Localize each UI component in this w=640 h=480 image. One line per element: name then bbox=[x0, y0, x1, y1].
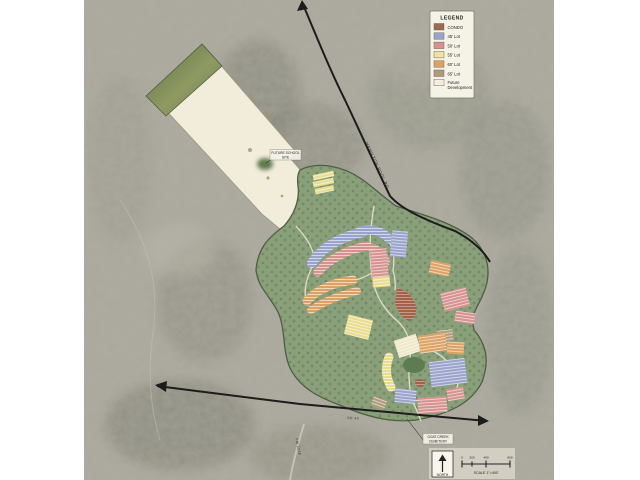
legend-label-65: 65' Lot bbox=[448, 71, 461, 76]
legend-title: LEGEND bbox=[440, 16, 463, 22]
legend-swatch-60 bbox=[434, 61, 444, 67]
scale-label: SCALE 1"=400' bbox=[474, 471, 499, 475]
lot-band-55 bbox=[373, 276, 391, 287]
lot-band-60 bbox=[447, 341, 465, 354]
scale-tick-200: 200 bbox=[469, 456, 474, 460]
legend-label-future-line2: Development bbox=[448, 85, 474, 90]
bottom-road-label: SH 45 bbox=[347, 416, 359, 421]
left-margin bbox=[0, 0, 84, 480]
condo-area bbox=[415, 379, 425, 387]
lot-band-50 bbox=[417, 396, 447, 414]
legend-swatch-future bbox=[434, 79, 444, 86]
tract-callout-line2: SITE bbox=[282, 156, 290, 160]
master-plan-map: HAMILTON POOL RD SH 45 FM 3238 FUTURE SC… bbox=[0, 0, 640, 480]
scale-tick-400: 400 bbox=[483, 456, 488, 460]
lot-band-45 bbox=[394, 388, 416, 404]
junction-callout-line2: CEMETERY bbox=[429, 440, 448, 444]
lot-band-45 bbox=[390, 230, 408, 257]
legend-label-condo: CONDO bbox=[448, 25, 464, 30]
lot-band-60 bbox=[418, 332, 447, 354]
legend-label-55: 55' Lot bbox=[448, 53, 461, 58]
scale-tick-0: 0 bbox=[461, 456, 463, 460]
legend-swatch-50 bbox=[434, 42, 444, 49]
lot-band-45 bbox=[429, 358, 468, 387]
legend-label-45: 45' Lot bbox=[448, 34, 461, 39]
legend-swatch-55 bbox=[434, 51, 444, 58]
legend: LEGEND CONDO 45' Lot 50' Lot 55' Lot 60'… bbox=[430, 11, 474, 98]
central-park bbox=[403, 357, 425, 373]
right-margin bbox=[554, 0, 640, 480]
tract-callout-line1: FUTURE SCHOOL bbox=[271, 151, 299, 155]
lot-band-55 bbox=[386, 357, 391, 387]
north-scale-block: NORTH 0 200 400 800 SCALE 1"=400' bbox=[429, 448, 515, 479]
legend-swatch-condo bbox=[434, 24, 444, 31]
north-label: NORTH bbox=[437, 473, 449, 477]
legend-swatch-65 bbox=[434, 70, 444, 77]
legend-label-60: 60' Lot bbox=[448, 62, 461, 67]
scale-tick-800: 800 bbox=[507, 456, 512, 460]
junction-callout-line1: GOAT CREEK bbox=[427, 435, 449, 439]
site-plan-page: HAMILTON POOL RD SH 45 FM 3238 FUTURE SC… bbox=[0, 0, 640, 480]
legend-swatch-45 bbox=[434, 33, 444, 40]
legend-label-50: 50' Lot bbox=[448, 43, 461, 48]
